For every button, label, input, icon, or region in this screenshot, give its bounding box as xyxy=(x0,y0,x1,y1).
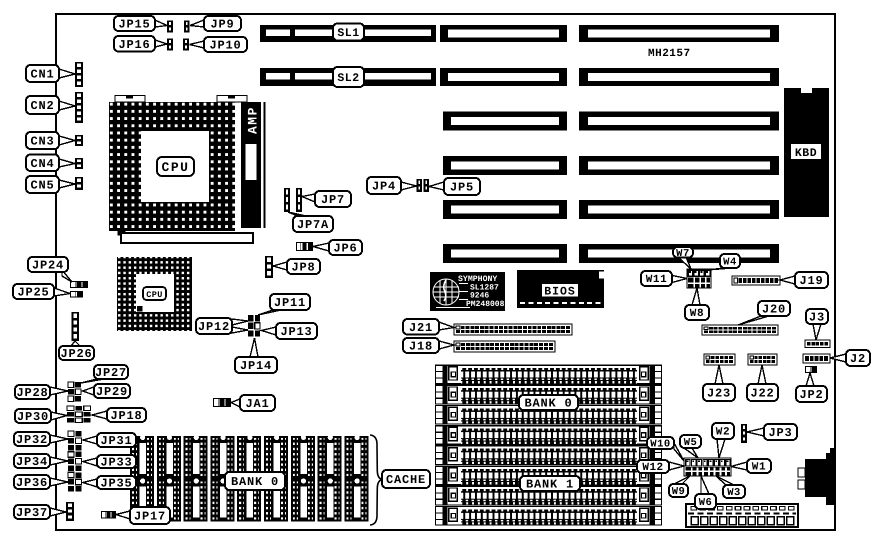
svg-text:JP27: JP27 xyxy=(95,366,127,380)
svg-text:J18: J18 xyxy=(409,340,433,354)
svg-text:W2: W2 xyxy=(716,427,730,439)
svg-text:CACHE: CACHE xyxy=(386,473,426,487)
svg-text:JP12: JP12 xyxy=(198,320,230,334)
svg-text:BANK 0: BANK 0 xyxy=(524,397,572,411)
svg-text:JP7: JP7 xyxy=(321,193,345,207)
svg-text:CN5: CN5 xyxy=(30,179,54,193)
svg-text:CPU: CPU xyxy=(162,160,190,175)
svg-text:JP8: JP8 xyxy=(291,261,315,275)
svg-text:JA1: JA1 xyxy=(245,397,269,411)
svg-text:W1: W1 xyxy=(752,462,766,474)
svg-text:JP35: JP35 xyxy=(100,477,132,491)
svg-text:AMP: AMP xyxy=(246,106,261,134)
svg-text:BANK 1: BANK 1 xyxy=(526,478,574,492)
svg-text:JP36: JP36 xyxy=(16,476,48,490)
svg-text:SL1: SL1 xyxy=(337,27,359,40)
svg-text:W4: W4 xyxy=(723,257,737,269)
svg-text:JP29: JP29 xyxy=(96,385,128,399)
svg-text:BANK 0: BANK 0 xyxy=(231,475,279,489)
svg-text:W10: W10 xyxy=(650,439,670,451)
svg-text:PM248008: PM248008 xyxy=(466,300,505,309)
svg-text:JP24: JP24 xyxy=(32,259,64,273)
svg-text:JP9: JP9 xyxy=(210,18,234,32)
svg-text:JP16: JP16 xyxy=(118,38,150,52)
svg-text:JP14: JP14 xyxy=(240,359,272,373)
svg-text:J2: J2 xyxy=(850,352,866,366)
svg-text:MH2157: MH2157 xyxy=(648,48,691,60)
svg-text:JP18: JP18 xyxy=(110,409,142,423)
svg-text:J22: J22 xyxy=(750,387,774,401)
svg-text:J19: J19 xyxy=(799,274,823,288)
svg-text:JP32: JP32 xyxy=(16,433,48,447)
svg-text:W6: W6 xyxy=(699,497,713,509)
svg-text:CPU: CPU xyxy=(146,290,163,300)
svg-text:JP11: JP11 xyxy=(274,296,306,310)
svg-text:JP3: JP3 xyxy=(768,426,792,440)
svg-text:JP10: JP10 xyxy=(209,39,241,53)
svg-text:SL2: SL2 xyxy=(337,72,359,85)
svg-text:J3: J3 xyxy=(809,311,825,325)
svg-text:JP26: JP26 xyxy=(60,347,92,361)
svg-text:JP25: JP25 xyxy=(17,286,49,300)
svg-text:W3: W3 xyxy=(727,487,741,499)
svg-text:JP15: JP15 xyxy=(118,18,150,32)
svg-text:JP30: JP30 xyxy=(17,410,49,424)
svg-text:J20: J20 xyxy=(762,303,786,317)
svg-text:W12: W12 xyxy=(642,462,663,474)
svg-text:W11: W11 xyxy=(646,274,668,286)
svg-text:JP7A: JP7A xyxy=(297,218,329,232)
svg-text:JP37: JP37 xyxy=(16,506,48,520)
svg-text:W8: W8 xyxy=(690,308,704,320)
svg-text:J23: J23 xyxy=(707,387,731,401)
svg-text:JP4: JP4 xyxy=(372,180,396,194)
svg-text:W5: W5 xyxy=(684,437,698,449)
svg-text:W7: W7 xyxy=(676,248,690,260)
svg-text:JP5: JP5 xyxy=(450,181,474,195)
svg-text:J21: J21 xyxy=(409,321,433,335)
svg-text:JP17: JP17 xyxy=(134,510,166,524)
svg-text:W9: W9 xyxy=(672,486,686,498)
svg-text:KBD: KBD xyxy=(795,147,817,160)
svg-text:JP33: JP33 xyxy=(100,456,132,470)
svg-text:JP13: JP13 xyxy=(280,325,312,339)
svg-text:CN3: CN3 xyxy=(30,135,54,149)
svg-text:JP6: JP6 xyxy=(333,242,357,256)
svg-text:JP28: JP28 xyxy=(16,386,48,400)
svg-text:JP34: JP34 xyxy=(16,455,48,469)
svg-text:JP31: JP31 xyxy=(100,434,132,448)
svg-text:CN4: CN4 xyxy=(30,157,54,171)
svg-text:CN2: CN2 xyxy=(30,99,54,113)
svg-text:CN1: CN1 xyxy=(30,68,54,82)
svg-text:JP2: JP2 xyxy=(799,388,823,402)
svg-text:BIOS: BIOS xyxy=(544,286,576,299)
